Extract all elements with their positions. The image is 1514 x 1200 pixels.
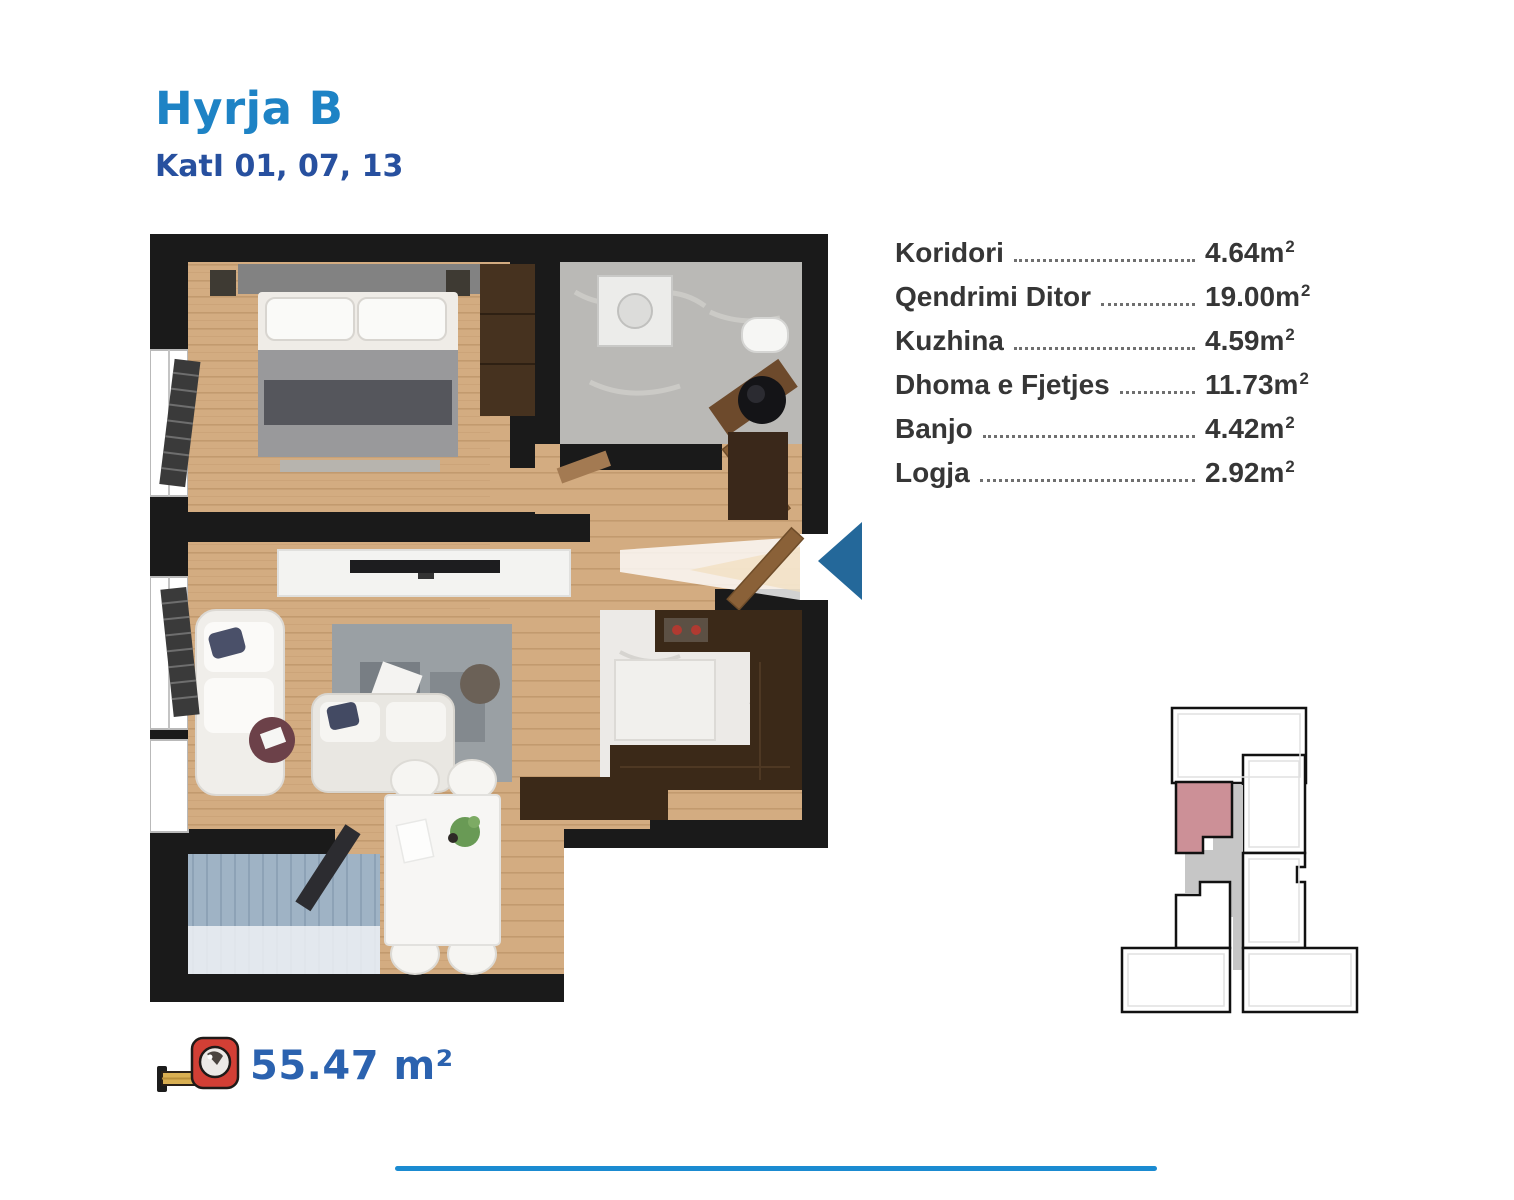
- bedroom-door-gap: [508, 468, 535, 512]
- toilet: [742, 318, 788, 352]
- room-area-value: 2.92m2: [1205, 456, 1325, 489]
- kitchen-cabinet: [520, 777, 668, 820]
- dotted-leader: [980, 479, 1195, 482]
- stove-burner: [672, 625, 682, 635]
- floor-plan-drawing: [150, 232, 870, 1007]
- minimap-unit: [1243, 755, 1305, 853]
- room-label: Dhoma e Fjetjes: [895, 368, 1110, 401]
- room-label: Koridori: [895, 236, 1004, 269]
- kitchen-island: [615, 660, 715, 740]
- sofa: [196, 610, 284, 795]
- dotted-leader: [1014, 259, 1195, 262]
- room-label: Kuzhina: [895, 324, 1004, 357]
- room-label: Qendrimi Ditor: [895, 280, 1091, 313]
- entrance-opening: [800, 534, 828, 600]
- minimap-unit: [1176, 882, 1230, 948]
- room-row: Kuzhina4.59m2: [895, 324, 1325, 357]
- minimap-unit: [1243, 948, 1357, 1012]
- dotted-leader: [1014, 347, 1195, 350]
- minimap-unit: [1243, 853, 1305, 948]
- total-area-value: 55.47 m²: [250, 1043, 454, 1089]
- minimap-unit: [1122, 948, 1230, 1012]
- side-table: [460, 664, 500, 704]
- room-label: Banjo: [895, 412, 973, 445]
- tape-measure-icon: [156, 1034, 240, 1098]
- tv-console: [278, 550, 570, 596]
- room-area-value: 4.42m2: [1205, 412, 1325, 445]
- page-title: Hyrja B: [155, 86, 343, 131]
- room-area-value: 4.64m2: [1205, 236, 1325, 269]
- stove-burner: [691, 625, 701, 635]
- entry-cabinet: [728, 432, 788, 520]
- floor-plan: [150, 232, 870, 1007]
- dotted-leader: [1101, 303, 1195, 306]
- room-row: Koridori4.64m2: [895, 236, 1325, 269]
- room-row: Banjo4.42m2: [895, 412, 1325, 445]
- total-area-block: 55.47 m²: [156, 1034, 454, 1098]
- dotted-leader: [983, 435, 1195, 438]
- shower: [598, 276, 672, 346]
- room-row: Qendrimi Ditor19.00m2: [895, 280, 1325, 313]
- wardrobe: [480, 264, 535, 416]
- room-area-list: Koridori4.64m2Qendrimi Ditor19.00m2Kuzhi…: [895, 236, 1325, 500]
- room-area-value: 4.59m2: [1205, 324, 1325, 357]
- divider-line: [395, 1166, 1157, 1171]
- floors-subtitle: KatI 01, 07, 13: [155, 152, 403, 182]
- room-row: Logja2.92m2: [895, 456, 1325, 489]
- room-label: Logja: [895, 456, 970, 489]
- dotted-leader: [1120, 391, 1195, 394]
- building-position-map: [1118, 700, 1360, 1015]
- kitchen-counter: [600, 610, 802, 790]
- room-row: Dhoma e Fjetjes11.73m2: [895, 368, 1325, 401]
- room-area-value: 11.73m2: [1205, 368, 1325, 401]
- room-area-value: 19.00m2: [1205, 280, 1325, 313]
